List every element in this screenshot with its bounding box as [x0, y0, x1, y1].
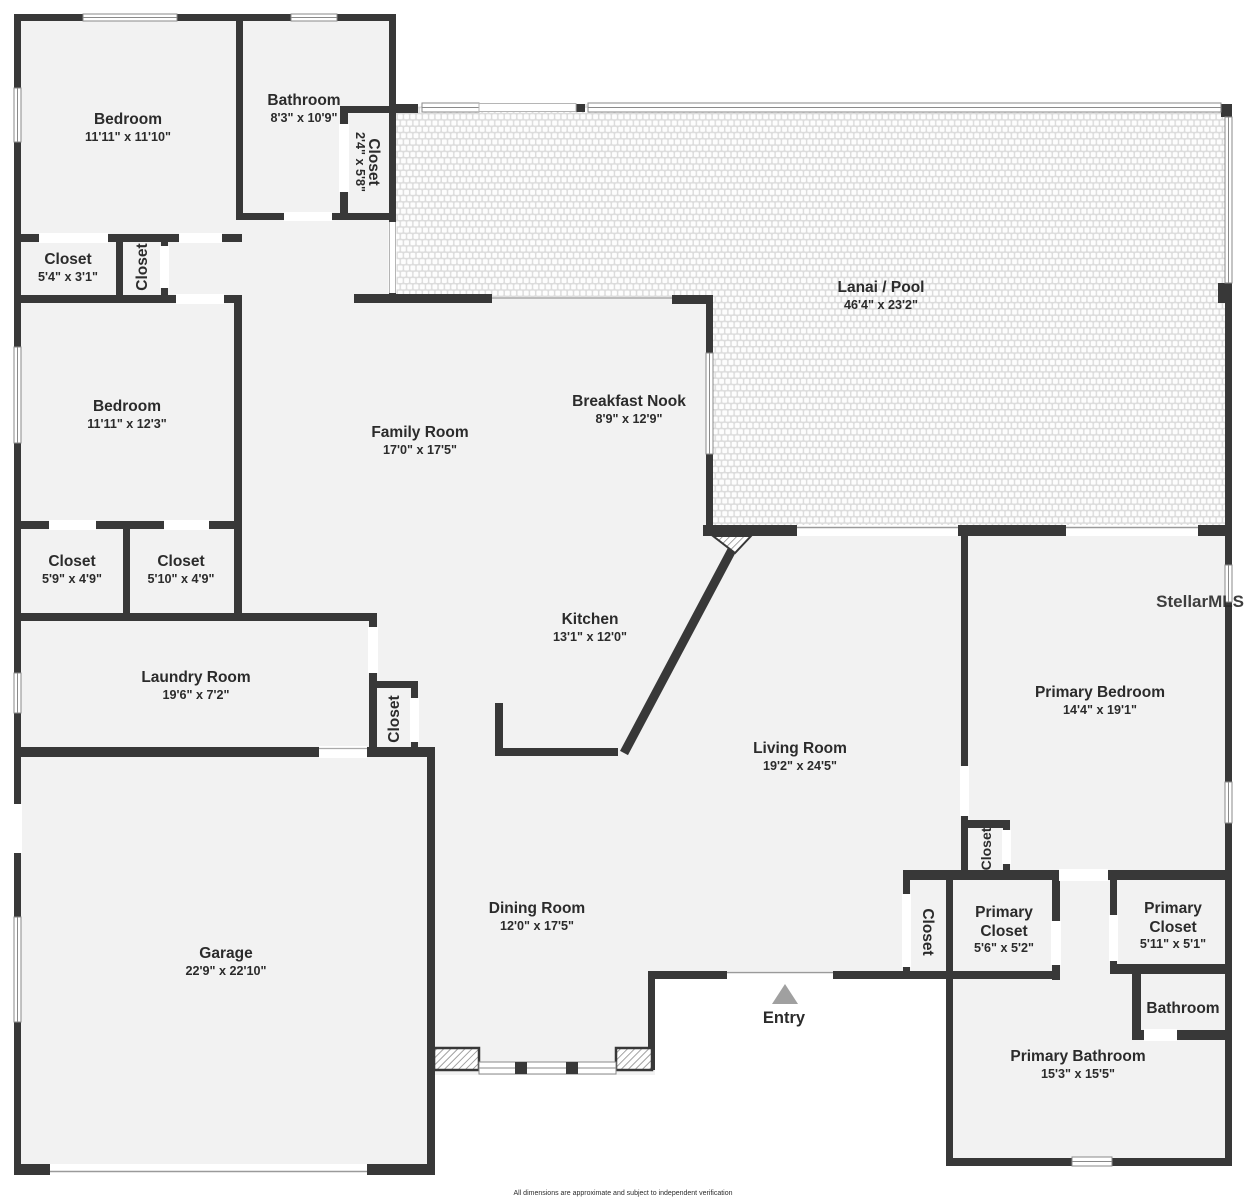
- svg-text:14'4" x 19'1": 14'4" x 19'1": [1063, 703, 1137, 717]
- svg-text:Laundry Room: Laundry Room: [141, 669, 250, 686]
- svg-text:46'4" x 23'2": 46'4" x 23'2": [844, 298, 918, 312]
- svg-text:Garage: Garage: [199, 945, 253, 962]
- svg-text:Closet: Closet: [978, 827, 994, 870]
- svg-text:Closet: Closet: [157, 553, 204, 570]
- svg-text:Entry: Entry: [763, 1009, 806, 1027]
- svg-text:5'4" x 3'1": 5'4" x 3'1": [38, 270, 98, 284]
- svg-text:StellarMLS: StellarMLS: [1156, 592, 1244, 611]
- svg-text:5'6" x 5'2": 5'6" x 5'2": [974, 941, 1034, 955]
- svg-text:Bathroom: Bathroom: [1146, 1000, 1219, 1017]
- svg-text:8'3" x 10'9": 8'3" x 10'9": [271, 111, 338, 125]
- svg-text:Closet: Closet: [1149, 919, 1196, 936]
- svg-text:8'9" x 12'9": 8'9" x 12'9": [596, 412, 663, 426]
- svg-text:Living Room: Living Room: [753, 740, 847, 757]
- svg-text:Closet: Closet: [980, 923, 1027, 940]
- svg-text:11'11" x 12'3": 11'11" x 12'3": [87, 417, 167, 431]
- svg-text:Bedroom: Bedroom: [93, 398, 161, 415]
- svg-text:5'10" x 4'9": 5'10" x 4'9": [148, 572, 215, 586]
- svg-text:Kitchen: Kitchen: [562, 611, 619, 628]
- svg-text:Closet: Closet: [386, 695, 403, 742]
- svg-text:Family Room: Family Room: [371, 424, 468, 441]
- svg-text:12'0" x 17'5": 12'0" x 17'5": [500, 919, 574, 933]
- svg-text:5'9" x 4'9": 5'9" x 4'9": [42, 572, 102, 586]
- svg-text:Closet: Closet: [44, 251, 91, 268]
- svg-text:Lanai / Pool: Lanai / Pool: [838, 279, 925, 296]
- svg-text:Dining Room: Dining Room: [489, 900, 585, 917]
- svg-text:Primary Bathroom: Primary Bathroom: [1010, 1048, 1145, 1065]
- svg-text:17'0" x 17'5": 17'0" x 17'5": [383, 443, 457, 457]
- svg-text:5'11" x 5'1": 5'11" x 5'1": [1140, 937, 1206, 951]
- svg-text:11'11" x 11'10": 11'11" x 11'10": [85, 130, 171, 144]
- svg-text:Bedroom: Bedroom: [94, 111, 162, 128]
- svg-text:Breakfast Nook: Breakfast Nook: [572, 393, 686, 410]
- svg-text:Primary: Primary: [1144, 900, 1202, 917]
- svg-text:22'9" x 22'10": 22'9" x 22'10": [186, 964, 267, 978]
- svg-text:Closet: Closet: [134, 243, 151, 290]
- svg-text:19'6" x 7'2": 19'6" x 7'2": [163, 688, 230, 702]
- svg-text:Primary Bedroom: Primary Bedroom: [1035, 684, 1165, 701]
- svg-text:Primary: Primary: [975, 904, 1033, 921]
- svg-text:Bathroom: Bathroom: [267, 92, 340, 109]
- svg-text:All dimensions are approximate: All dimensions are approximate and subje…: [513, 1190, 732, 1197]
- svg-text:15'3" x 15'5": 15'3" x 15'5": [1041, 1067, 1115, 1081]
- svg-text:Closet: Closet: [919, 908, 936, 955]
- svg-text:2'4" x 5'8": 2'4" x 5'8": [353, 132, 367, 192]
- svg-text:Closet: Closet: [48, 553, 95, 570]
- svg-text:19'2" x 24'5": 19'2" x 24'5": [763, 759, 837, 773]
- svg-text:13'1" x 12'0": 13'1" x 12'0": [553, 630, 627, 644]
